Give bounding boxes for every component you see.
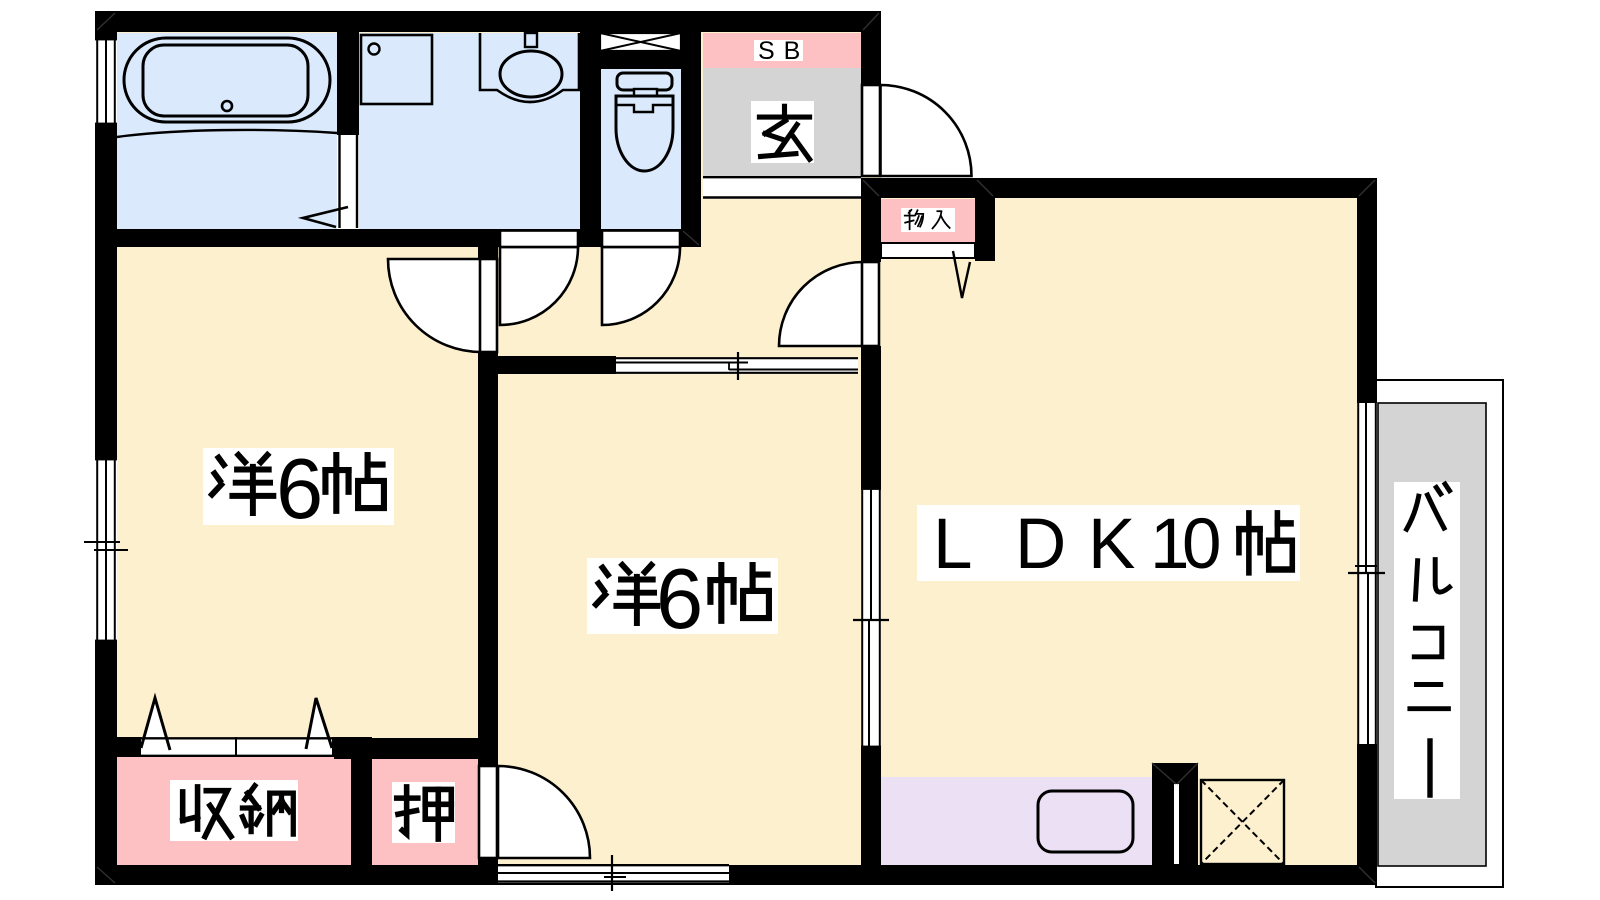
svg-text:SB: SB [758, 37, 809, 65]
svg-text:6: 6 [276, 442, 323, 537]
svg-text:6: 6 [656, 552, 703, 647]
svg-text:D: D [1015, 505, 1066, 584]
svg-text:0: 0 [1182, 505, 1222, 584]
svg-text:L: L [933, 505, 973, 584]
svg-text:K: K [1088, 505, 1135, 584]
